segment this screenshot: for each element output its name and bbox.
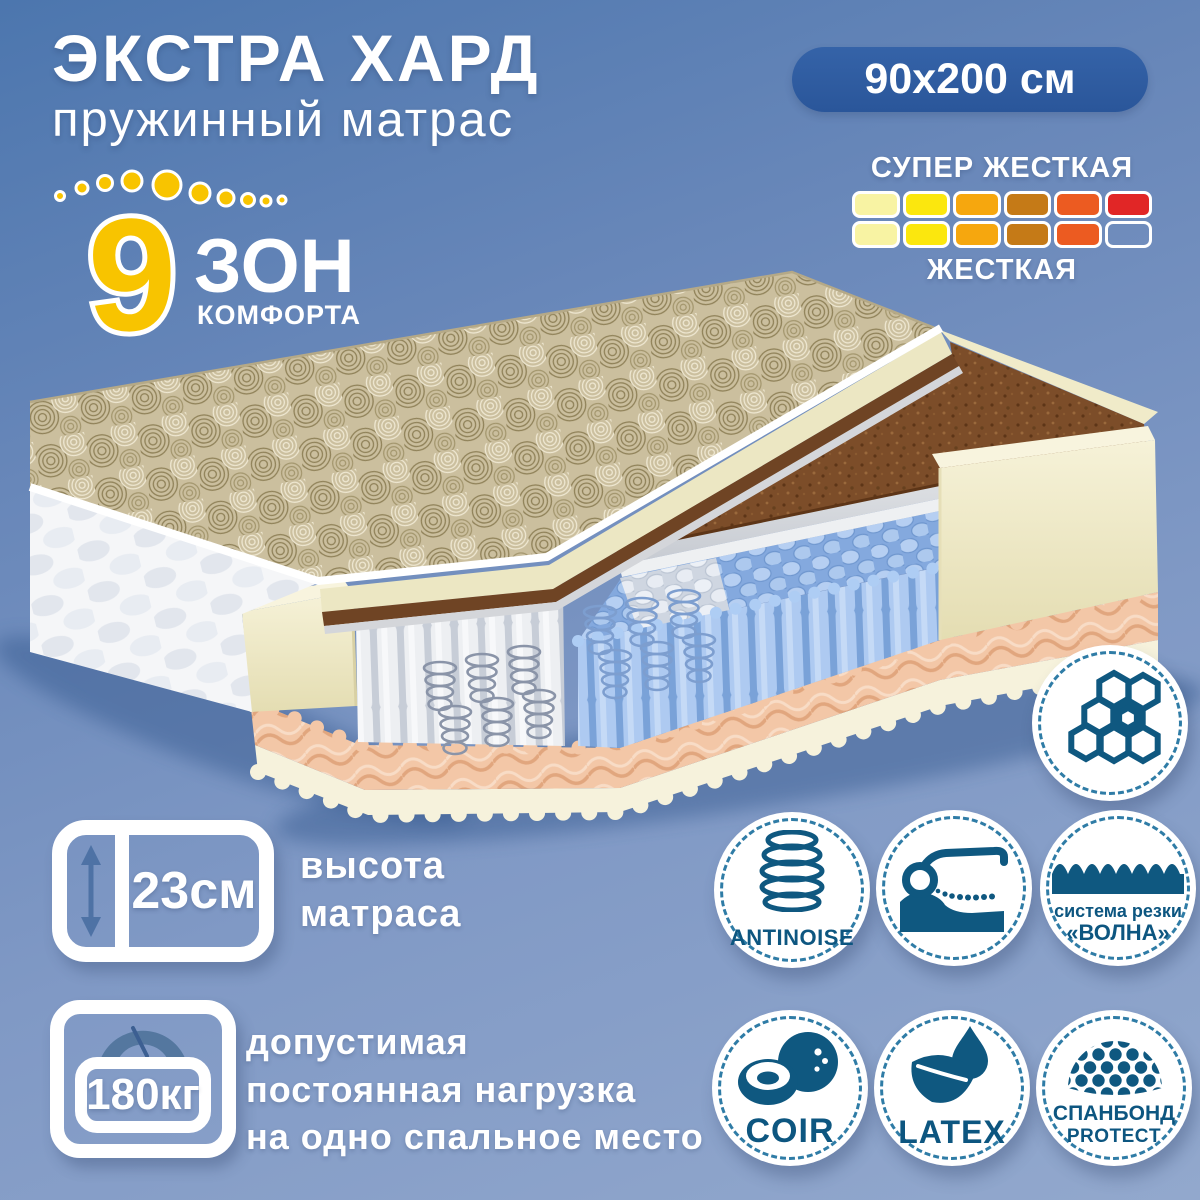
sleeper-icon xyxy=(894,842,1014,936)
scale-dial-icon xyxy=(93,1010,193,1062)
feature-badge-ergonomic xyxy=(876,810,1032,966)
product-card: ЭКСТРА ХАРД пружинный матрас 90x200 см С… xyxy=(0,0,1200,1200)
product-subtitle: пружинный матрас xyxy=(52,95,541,146)
height-value: 23см xyxy=(129,835,259,947)
firmness-cell xyxy=(903,191,951,218)
zone-number: 9 xyxy=(88,185,177,342)
zone-label: ЗОН xyxy=(194,224,355,309)
firmness-cell xyxy=(953,221,1001,248)
feature-badge-spunbond: СПАНБОНД PROTECT xyxy=(1036,1010,1192,1166)
feature-badge-wave-cut: система резки «ВОЛНА» xyxy=(1040,810,1196,966)
honeycomb-icon xyxy=(1050,663,1170,783)
feature-badge-honeycomb xyxy=(1032,645,1188,801)
load-value: 180кг xyxy=(75,1057,211,1133)
comfort-zones-badge: 9 ЗОН КОМФОРТА xyxy=(42,162,362,342)
spunbond-label-line2: PROTECT xyxy=(1036,1126,1192,1148)
height-label-line2: матраса xyxy=(300,891,461,939)
firmness-cell xyxy=(1105,191,1153,218)
title-block: ЭКСТРА ХАРД пружинный матрас xyxy=(52,24,541,147)
spunbond-dots-icon xyxy=(1056,1022,1172,1100)
leaf-droplet-icon xyxy=(900,1024,1004,1112)
firmness-cell xyxy=(1004,191,1052,218)
feature-badge-coir: COIR xyxy=(712,1010,868,1166)
load-label-line1: допустимая xyxy=(246,1018,704,1066)
firmness-cell xyxy=(852,191,900,218)
feature-badge-antinoise: ANTINOISE xyxy=(714,812,870,968)
firmness-cell xyxy=(903,221,951,248)
firmness-cell xyxy=(1105,221,1153,248)
firmness-bottom-label: ЖЕСТКАЯ xyxy=(852,254,1152,287)
zone-sublabel: КОМФОРТА xyxy=(197,300,361,330)
firmness-top-label: СУПЕР ЖЕСТКАЯ xyxy=(852,152,1152,185)
coir-label: COIR xyxy=(712,1112,868,1151)
spunbond-label-line1: СПАНБОНД xyxy=(1036,1102,1192,1126)
firmness-scale: СУПЕР ЖЕСТКАЯ ЖЕСТКАЯ xyxy=(852,152,1152,287)
firmness-cell xyxy=(852,221,900,248)
product-title: ЭКСТРА ХАРД xyxy=(52,24,541,93)
height-badge: 23см xyxy=(52,820,274,962)
firmness-cell xyxy=(1054,221,1102,248)
load-label: допустимая постоянная нагрузка на одно с… xyxy=(246,1018,704,1161)
height-label: высота матраса xyxy=(300,843,461,938)
feature-badge-latex: LATEX xyxy=(874,1010,1030,1166)
wave-icon xyxy=(1048,842,1188,898)
firmness-cell xyxy=(953,191,1001,218)
antinoise-label: ANTINOISE xyxy=(714,925,870,951)
latex-label: LATEX xyxy=(874,1114,1030,1151)
height-badge-divider xyxy=(115,835,129,947)
height-label-line1: высота xyxy=(300,843,461,891)
height-arrow-icon xyxy=(67,835,115,947)
wave-label-line1: система резки xyxy=(1040,901,1196,922)
firmness-cell xyxy=(1004,221,1052,248)
load-badge: 180кг xyxy=(50,1000,236,1158)
firmness-cell xyxy=(1054,191,1102,218)
firmness-grid xyxy=(852,191,1152,248)
load-label-line2: постоянная нагрузка xyxy=(246,1066,704,1114)
size-badge: 90x200 см xyxy=(792,47,1148,112)
wave-label-line2: «ВОЛНА» xyxy=(1040,920,1196,946)
load-label-line3: на одно спальное место xyxy=(246,1113,704,1161)
coconut-icon xyxy=(732,1028,848,1112)
spring-icon xyxy=(737,830,847,912)
